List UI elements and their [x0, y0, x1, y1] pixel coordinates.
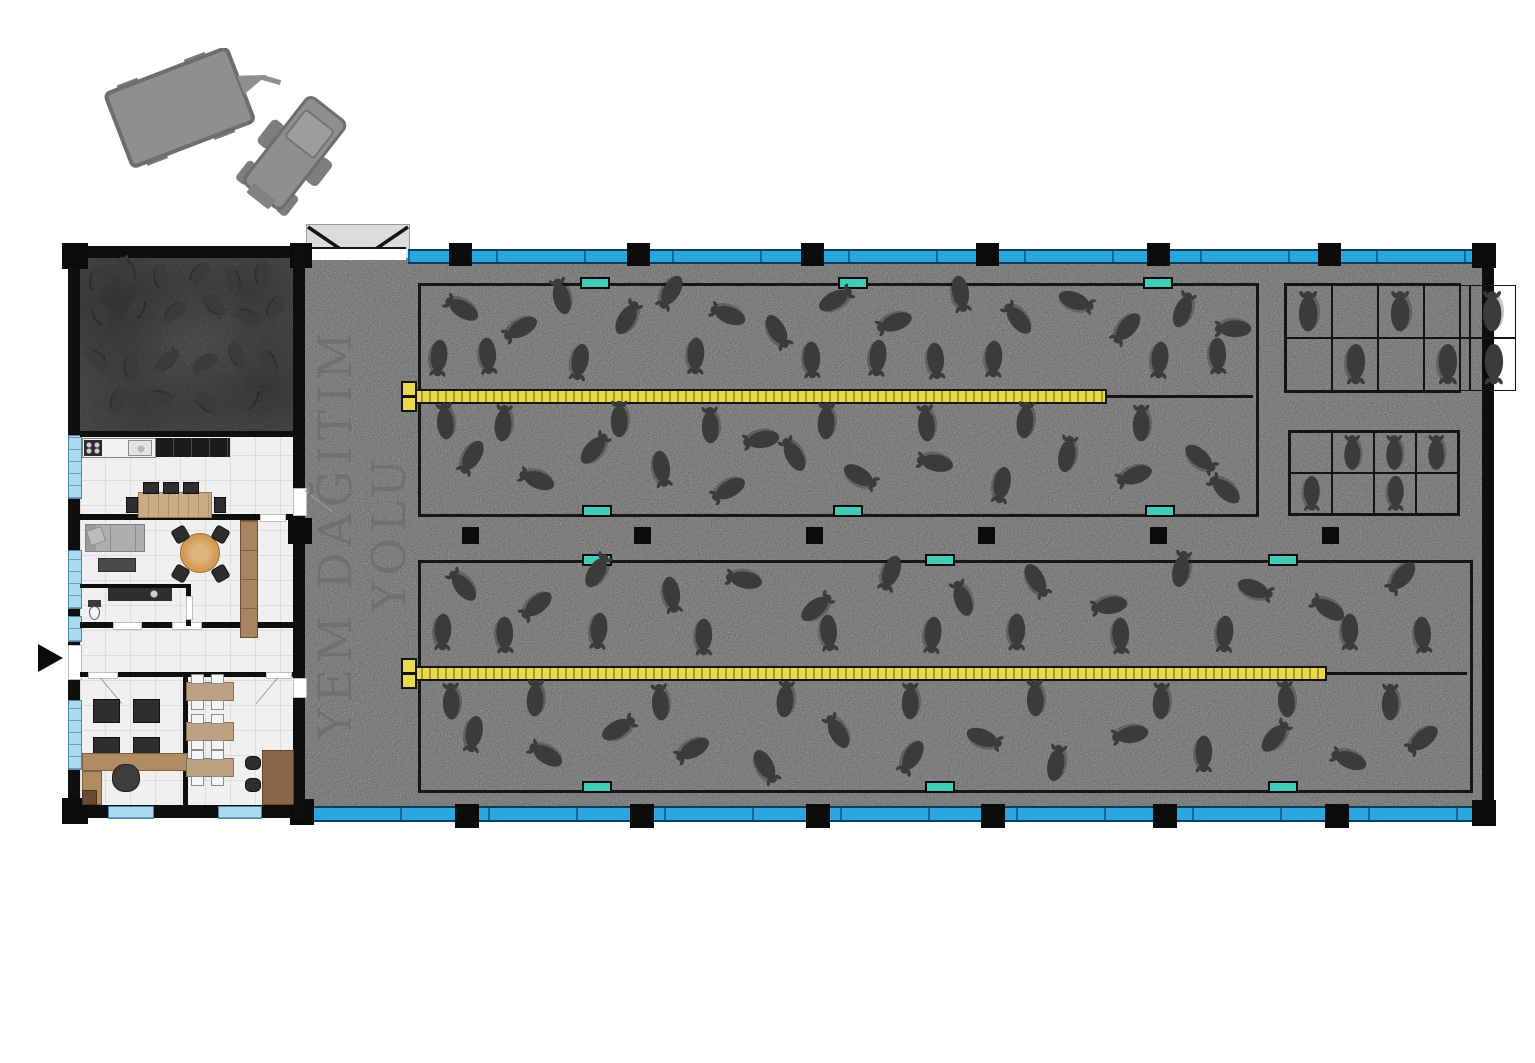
sheep-icon [899, 681, 923, 721]
sheep-icon [121, 290, 153, 326]
bottom-window-band [312, 806, 1482, 822]
stall-cell [1424, 285, 1470, 338]
annex-bottom-window-1 [108, 806, 154, 819]
sheep-icon [814, 612, 841, 654]
bench-chair [191, 674, 204, 684]
sheep-icon [1254, 714, 1298, 760]
sheep-icon [1191, 734, 1215, 774]
sheep-icon [143, 385, 178, 411]
left-window-office [68, 700, 82, 770]
sheep-icon [80, 342, 114, 378]
sheep-icon [772, 678, 799, 720]
stall-grid-2 [1288, 430, 1460, 516]
sheep-icon [798, 340, 823, 381]
sheep-zone-quarantine_pen [80, 260, 292, 432]
structural-column [630, 804, 654, 828]
sheep-icon [149, 343, 185, 377]
corridor-entrance-opening [308, 247, 406, 260]
bench-chair [211, 750, 224, 760]
sheep-icon [450, 434, 491, 481]
sheep-zone-pen1_lower [421, 407, 1250, 507]
sheep-icon [1409, 614, 1436, 656]
kitchen-cabinets [156, 438, 230, 457]
sheep-icon [921, 340, 948, 382]
sheep-icon [961, 721, 1007, 757]
bench-chair [191, 714, 204, 724]
stall-cell [1290, 473, 1332, 514]
sheep-zone-pen2_upper [421, 563, 1464, 662]
sheep-icon [1379, 682, 1403, 722]
stall-cell [1332, 285, 1378, 338]
stall-cell [1416, 432, 1458, 473]
sheep-icon [490, 402, 517, 444]
sheep-icon [608, 295, 649, 342]
sheep-icon [229, 302, 265, 332]
sheep-icon [223, 337, 251, 372]
stall-cell [1332, 338, 1378, 391]
stall-cell [1424, 338, 1470, 391]
bench-chair [191, 750, 204, 760]
sheep-icon [698, 405, 723, 446]
sheep-icon [723, 564, 767, 595]
feed-conveyor [405, 666, 1327, 681]
sheep-icon [1042, 742, 1073, 786]
armchair [133, 699, 160, 723]
stall-cell [1416, 473, 1458, 514]
sheep-icon [1337, 612, 1361, 652]
structural-column [806, 804, 830, 828]
sheep-icon [514, 461, 560, 497]
sheep-icon [918, 614, 945, 656]
sheep-icon [757, 309, 798, 356]
door-opening [266, 672, 292, 679]
sheep-icon [158, 295, 194, 329]
sheep-icon [1434, 342, 1460, 386]
armchair [93, 699, 120, 723]
sheep-icon [259, 290, 291, 326]
bench-table [186, 758, 234, 777]
sheep-icon [441, 562, 485, 608]
bench-chair [211, 674, 224, 684]
structural-column [1150, 527, 1167, 544]
stall-cell [1290, 432, 1332, 473]
desk-drawer [82, 790, 97, 805]
sheep-zone-pen1_upper [421, 286, 1250, 386]
sheep-icon [1016, 557, 1057, 604]
annex-bottom-wall [62, 805, 308, 818]
sheep-icon [492, 615, 517, 656]
left-window-living [68, 550, 82, 609]
corner-column [1472, 243, 1496, 268]
corridor-label: YEM DAĞITIM YOLU [308, 272, 404, 794]
sheep-icon [1111, 457, 1157, 493]
stall-cell [1332, 473, 1374, 514]
sheep-icon [1053, 284, 1099, 320]
sheep-icon [187, 347, 223, 379]
sheep-icon [986, 463, 1017, 507]
sheep-icon [1211, 614, 1237, 655]
sheep-icon [774, 431, 815, 478]
sheep-icon [189, 386, 225, 420]
corridor-door-2 [293, 678, 307, 698]
corner-column [1472, 800, 1496, 826]
sheep-icon [837, 457, 884, 498]
pen-divider-line [1107, 395, 1253, 398]
bench-chair [191, 776, 204, 786]
sheep-icon [1052, 432, 1083, 476]
sheep-icon [1177, 437, 1223, 481]
structural-column [801, 243, 824, 266]
sheep-icon [1166, 287, 1202, 333]
sheep-icon [945, 575, 981, 621]
door-opening [260, 514, 286, 522]
stall-grid-1 [1284, 283, 1461, 393]
wardrobe [240, 520, 258, 638]
structural-column [1325, 804, 1349, 828]
sheep-icon [794, 585, 840, 629]
sheep-icon [691, 617, 715, 657]
bench-chair [211, 776, 224, 786]
sheep-icon [682, 336, 707, 377]
sheep-icon [234, 380, 266, 416]
sheep-icon [1480, 289, 1506, 333]
sheep-icon [182, 256, 215, 292]
dining-chair [183, 482, 199, 494]
sheep-icon [980, 339, 1005, 380]
sheep-icon [996, 295, 1040, 341]
sheep-icon [1384, 474, 1407, 512]
side-desk [262, 750, 294, 805]
sheep-icon [1145, 339, 1172, 381]
structural-column [634, 527, 651, 544]
sheep-icon [85, 297, 117, 333]
sheep-icon [1108, 719, 1152, 750]
sheep-icon [585, 610, 612, 652]
bench-table [186, 682, 234, 701]
sheep-icon [891, 733, 932, 780]
structural-column [1153, 804, 1177, 828]
structural-column [976, 243, 999, 266]
stall-cell [1378, 285, 1424, 338]
feed-conveyor-cap [401, 381, 417, 412]
sheep-icon [913, 402, 940, 444]
dining-chair [143, 482, 159, 494]
sheep-icon [563, 340, 594, 384]
sheep-icon [458, 712, 489, 756]
sheep-icon [1273, 678, 1300, 720]
structural-column [1322, 527, 1339, 544]
sheep-icon [573, 426, 617, 472]
structural-column [627, 243, 650, 266]
sheep-icon [596, 709, 643, 750]
annex-bottom-window-2 [218, 806, 262, 819]
structural-column [462, 527, 479, 544]
sheep-icon [474, 335, 501, 377]
sheep-icon [523, 733, 570, 774]
sheep-icon [1305, 587, 1352, 628]
sheep-icon [656, 573, 687, 617]
bench-chair [211, 740, 224, 750]
structural-column [978, 527, 995, 544]
sheep-zone-pen2_lower [421, 685, 1464, 783]
sheep-icon [1342, 433, 1365, 471]
stall-cell [1332, 432, 1374, 473]
coffee-table [98, 558, 136, 572]
sheep-icon [1107, 616, 1132, 657]
bench-chair [211, 700, 224, 710]
corridor-door-1 [293, 488, 307, 516]
sheep-icon [704, 469, 751, 510]
sheep-icon [739, 424, 783, 455]
annex-top-wall [62, 246, 305, 258]
sheep-icon [122, 351, 141, 382]
dining-chair [214, 497, 226, 513]
structural-column [449, 243, 472, 266]
sheep-icon [1342, 342, 1368, 386]
pen-divider-line [1327, 672, 1467, 675]
sheep-icon [1300, 474, 1323, 512]
bench-chair [191, 740, 204, 750]
farm-floor-plan: YEM DAĞITIM YOLU [0, 0, 1535, 1063]
dining-table [138, 492, 212, 518]
sheep-icon [429, 612, 454, 653]
kitchen-sink [128, 440, 152, 456]
sheep-icon [815, 401, 840, 442]
sheep-icon [871, 304, 917, 340]
stall-cell [1374, 432, 1416, 473]
stall-cell [1374, 473, 1416, 514]
left-window-kitchen [68, 435, 82, 499]
side-desk-chair [245, 756, 261, 770]
sheep-icon [513, 583, 559, 627]
sheep-icon [1130, 403, 1154, 443]
structural-column [1147, 243, 1170, 266]
left-window-bath [68, 616, 82, 642]
sheep-icon [85, 264, 109, 298]
stall-cell [1286, 285, 1332, 338]
sheep-icon [1232, 572, 1278, 608]
sheep-icon [1384, 433, 1407, 471]
dining-chair [163, 482, 179, 494]
sheep-icon [252, 257, 273, 290]
sheep-icon [424, 337, 451, 379]
bath-door [186, 596, 193, 620]
stall-cell [1378, 338, 1424, 391]
bath-counter [108, 588, 172, 601]
feed-conveyor [405, 389, 1107, 404]
stove [84, 440, 102, 456]
sheep-icon [705, 296, 751, 332]
tractor-trailer-icon [95, 48, 385, 218]
sheep-icon [439, 288, 486, 329]
sheep-icon [1104, 305, 1148, 351]
sheep-icon [1202, 467, 1248, 511]
structural-column [455, 804, 479, 828]
side-desk-chair [245, 778, 261, 792]
entrance-arrow-icon [38, 644, 63, 672]
bench-table [186, 722, 234, 741]
feed-conveyor-cap [401, 658, 417, 689]
office-chair [112, 764, 140, 792]
sheep-icon [440, 680, 465, 721]
sheep-icon [1296, 289, 1322, 333]
structural-column [1318, 243, 1341, 266]
door-opening [113, 622, 142, 630]
sheep-icon [255, 345, 283, 380]
structural-column [806, 527, 823, 544]
sheep-icon [1399, 717, 1445, 761]
sheep-icon [647, 681, 674, 723]
dining-chair [126, 497, 138, 513]
bench-chair [211, 714, 224, 724]
sheep-icon [863, 337, 890, 379]
sheep-icon [1326, 741, 1372, 777]
sheep-icon [818, 708, 859, 755]
door-opening [88, 672, 118, 679]
sheep-icon [913, 447, 957, 478]
stall-cell [1470, 285, 1516, 338]
sheep-icon [1004, 612, 1028, 652]
sheep-icon [1388, 289, 1414, 333]
sheep-icon [149, 260, 173, 294]
sheep-icon [1426, 433, 1449, 471]
sheep-icon [221, 264, 245, 298]
sheep-icon [669, 728, 716, 769]
sheep-icon [1088, 589, 1132, 620]
stall-cell [1286, 338, 1332, 391]
sheep-icon [196, 287, 231, 322]
sheep-icon [1149, 680, 1174, 721]
sheep-icon [646, 447, 677, 491]
structural-column [981, 804, 1005, 828]
sheep-icon [432, 400, 459, 442]
stall-cell [1470, 338, 1516, 391]
sheep-icon [104, 383, 132, 418]
sheep-icon [497, 308, 544, 349]
sheep-icon [812, 280, 859, 321]
sheep-icon [1213, 316, 1253, 340]
sheep-icon [1480, 342, 1506, 386]
bench-chair [191, 700, 204, 710]
sheep-icon [1204, 336, 1229, 377]
